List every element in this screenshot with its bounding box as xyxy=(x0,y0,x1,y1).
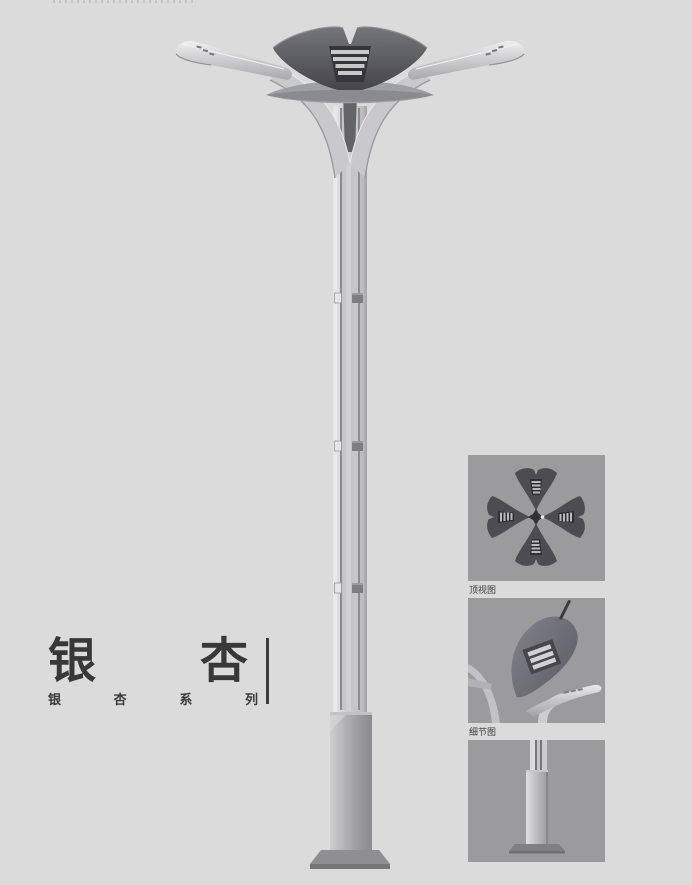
detail-view-panel xyxy=(468,598,605,723)
series-label: 银 杏 系 列 xyxy=(48,689,258,708)
lamp-base xyxy=(310,712,390,869)
top-view-panel xyxy=(468,455,605,581)
base-view-image xyxy=(468,740,605,862)
catalog-page: 银 杏 银 杏 系 列 xyxy=(0,0,692,885)
product-title: 银 杏 xyxy=(48,634,248,688)
title-divider-line xyxy=(266,638,269,704)
detail-view-caption-row: 细节图 xyxy=(468,723,605,740)
series-char-1: 银 xyxy=(48,689,61,708)
title-char-2: 杏 xyxy=(200,634,248,688)
base-view-panel xyxy=(468,740,605,862)
detail-view-image xyxy=(468,598,605,723)
title-char-1: 银 xyxy=(48,634,96,688)
series-char-4: 列 xyxy=(245,689,258,708)
top-view-caption-row: 顶视图 xyxy=(468,581,605,598)
detail-view-caption: 细节图 xyxy=(469,725,496,738)
series-char-3: 系 xyxy=(179,689,192,708)
series-char-2: 杏 xyxy=(114,689,127,708)
top-view-image xyxy=(468,455,605,581)
detail-panel-column: 顶视图 xyxy=(468,455,605,862)
top-view-caption: 顶视图 xyxy=(469,583,496,596)
lamp-pole xyxy=(333,106,367,712)
